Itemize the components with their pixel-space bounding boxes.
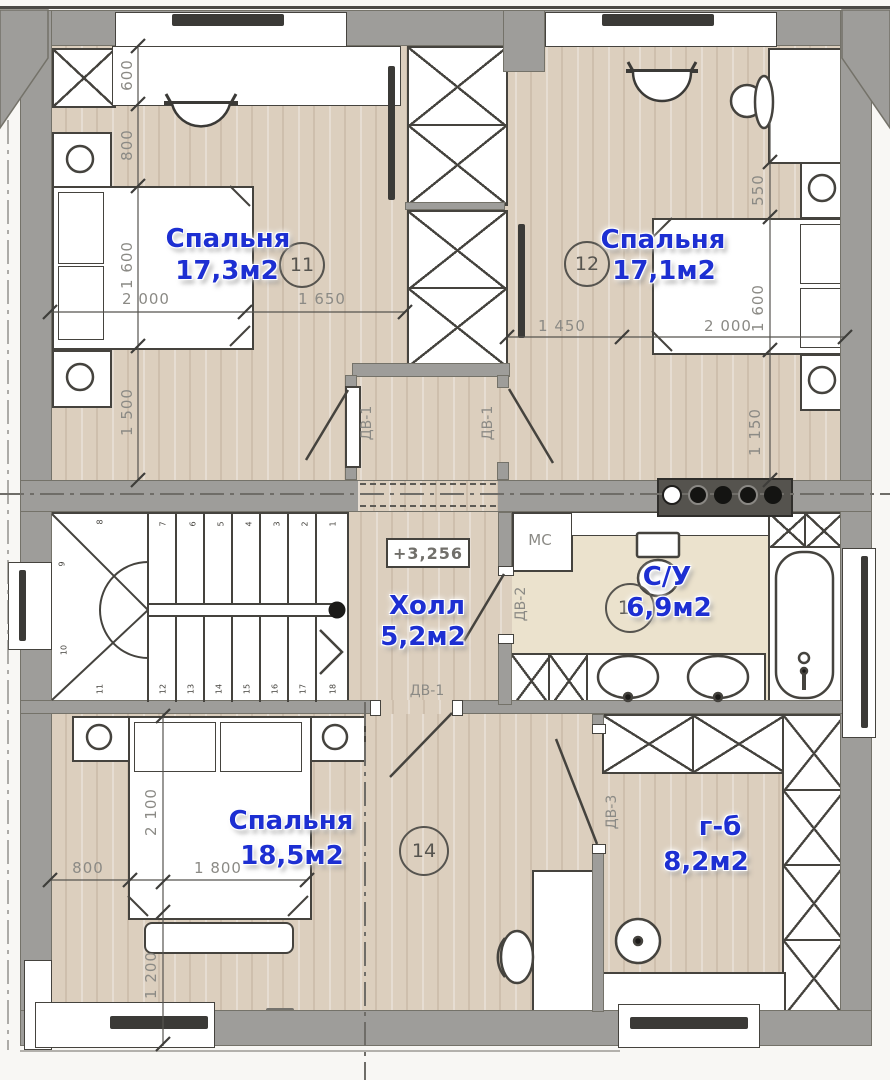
wardrobe-cabinet (782, 714, 846, 793)
door-jamb (592, 844, 606, 854)
room-area: 17,1м2 (612, 256, 716, 286)
nightstand (308, 716, 366, 762)
door-label: ДВ-1 (480, 406, 496, 441)
outer-left-line (7, 120, 9, 1050)
closet-strip (112, 46, 401, 106)
door-jamb (498, 634, 514, 644)
room-name: Спальня (166, 224, 291, 254)
dimension: 1 650 (298, 290, 346, 308)
floor-plan: 11 12 13 14 Спальня 17,3м2 Спальня 17,1м… (0, 0, 890, 1080)
bath-cabinet (804, 512, 844, 550)
dimension: 2 100 (142, 788, 160, 836)
dimension: 1 450 (538, 317, 586, 335)
wall-right (840, 10, 872, 1046)
nightstand (52, 350, 112, 408)
wardrobe-cabinet (52, 48, 116, 108)
door-opening (377, 700, 455, 714)
nightstand (72, 716, 130, 762)
wall-pier (503, 10, 545, 72)
room-name: Спальня (229, 806, 354, 836)
wall-left (20, 10, 52, 1046)
dimension: 2 000 (122, 290, 170, 308)
washing-machine-label: МС (528, 531, 551, 549)
room-name: Спальня (601, 225, 726, 255)
dimension: 1 150 (746, 408, 764, 456)
tv-wall-mount (518, 224, 525, 338)
room-area: 6,9м2 (626, 593, 711, 623)
window (842, 548, 876, 738)
bath-cabinet (768, 512, 809, 550)
wall-hall-bath (498, 636, 512, 705)
bathtub-zone (768, 546, 844, 708)
hall-closet-cell (407, 287, 508, 368)
room-name: Холл (389, 591, 465, 621)
dimension: 800 (72, 859, 104, 877)
dressing-table (768, 48, 849, 164)
wardrobe-cabinet (692, 714, 786, 774)
room-area: 17,3м2 (175, 256, 279, 286)
window-sash (172, 14, 284, 26)
pillow (220, 722, 302, 772)
dimension: 2 000 (704, 317, 752, 335)
stair-step-number: 17 (299, 684, 308, 694)
dimension: 800 (118, 129, 136, 161)
wardrobe-cabinet (782, 939, 846, 1018)
door-jamb (452, 700, 463, 716)
hall-closet-cell (407, 124, 508, 206)
wardrobe-cabinet (782, 789, 846, 868)
window-sash (19, 570, 26, 641)
dimension: 1 800 (194, 859, 242, 877)
stair-step-number: 10 (60, 645, 69, 655)
pillow (58, 192, 104, 264)
stair-step-number: 3 (273, 521, 282, 526)
door-label: ДВ-2 (513, 587, 529, 622)
wall-b14-wardrobe (592, 846, 604, 1012)
pillow (58, 266, 104, 340)
stair-step-number: 1 (329, 521, 338, 526)
door-jamb (370, 700, 381, 716)
stair-step-number: 6 (189, 521, 198, 526)
wall-jamb (497, 375, 509, 388)
elevation-mark: +3,256 (386, 538, 470, 568)
pillow (800, 224, 842, 284)
bed-bench (144, 922, 294, 954)
room-name: г-б (699, 812, 742, 842)
stair-step-number: 5 (217, 521, 226, 526)
wall-closet-divider (405, 202, 505, 210)
hall-closet-cell (407, 46, 508, 128)
wardrobe-cabinet (602, 714, 696, 774)
pillow (800, 288, 842, 348)
window (8, 562, 52, 650)
nightstand (52, 132, 112, 190)
window-sash (861, 556, 868, 728)
dimension: 550 (749, 174, 767, 206)
door-jamb (498, 566, 514, 576)
room-area: 18,5м2 (240, 841, 344, 871)
room-name: С/У (643, 562, 692, 592)
staircase (50, 512, 349, 706)
opening-dash (360, 483, 496, 485)
room-area: 5,2м2 (380, 622, 465, 652)
roof-edge-line (0, 6, 890, 9)
window-radiator (630, 1017, 748, 1029)
stair-step-number: 4 (245, 521, 254, 526)
desk (532, 870, 598, 1014)
stair-step-number: 18 (329, 684, 338, 694)
stair-step-number: 2 (301, 521, 310, 526)
door-label: ДВ-1 (410, 683, 445, 699)
wall-radiator-strip (657, 478, 793, 517)
stair-step-number: 8 (96, 519, 105, 524)
axis-line-vertical (364, 702, 366, 1080)
dimension: 1 500 (118, 388, 136, 436)
stair-step-number: 9 (58, 561, 67, 566)
door-label: ДВ-1 (359, 406, 375, 441)
wardrobe-cabinet (782, 864, 846, 943)
hall-closet-cell (407, 210, 508, 291)
stair-step-number: 11 (96, 684, 105, 694)
wall-jamb (497, 462, 509, 480)
stair-step-number: 14 (215, 684, 224, 694)
opening-dash (360, 505, 496, 507)
stair-step-number: 13 (187, 684, 196, 694)
stair-step-number: 15 (243, 684, 252, 694)
stair-step-number: 16 (271, 684, 280, 694)
stair-step-number: 7 (159, 521, 168, 526)
dimension: 1 200 (142, 951, 160, 999)
room-number-badge: 14 (399, 826, 449, 876)
door-jamb (592, 724, 606, 734)
window-sash (602, 14, 714, 26)
window-radiator (110, 1016, 208, 1029)
stair-step-number: 12 (159, 684, 168, 694)
terrace-line (20, 1050, 620, 1052)
pillow (134, 722, 216, 772)
tv-wall-mount (388, 66, 395, 200)
wall-hall-bath (498, 512, 512, 572)
door-label: ДВ-3 (604, 795, 620, 830)
dimension: 600 (118, 59, 136, 91)
room-area: 8,2м2 (663, 847, 748, 877)
dimension: 1 600 (118, 241, 136, 289)
wall-corridor-top (352, 363, 510, 377)
dimension: 1 600 (749, 284, 767, 332)
axis-line-horizontal (0, 493, 890, 495)
